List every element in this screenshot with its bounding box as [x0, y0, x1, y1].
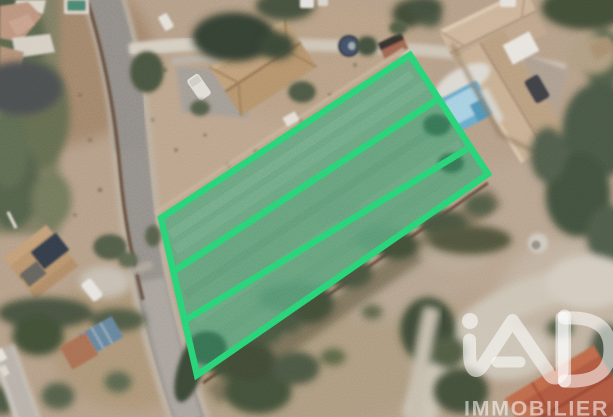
svg-text:IMMOBILIER: IMMOBILIER — [464, 397, 609, 417]
